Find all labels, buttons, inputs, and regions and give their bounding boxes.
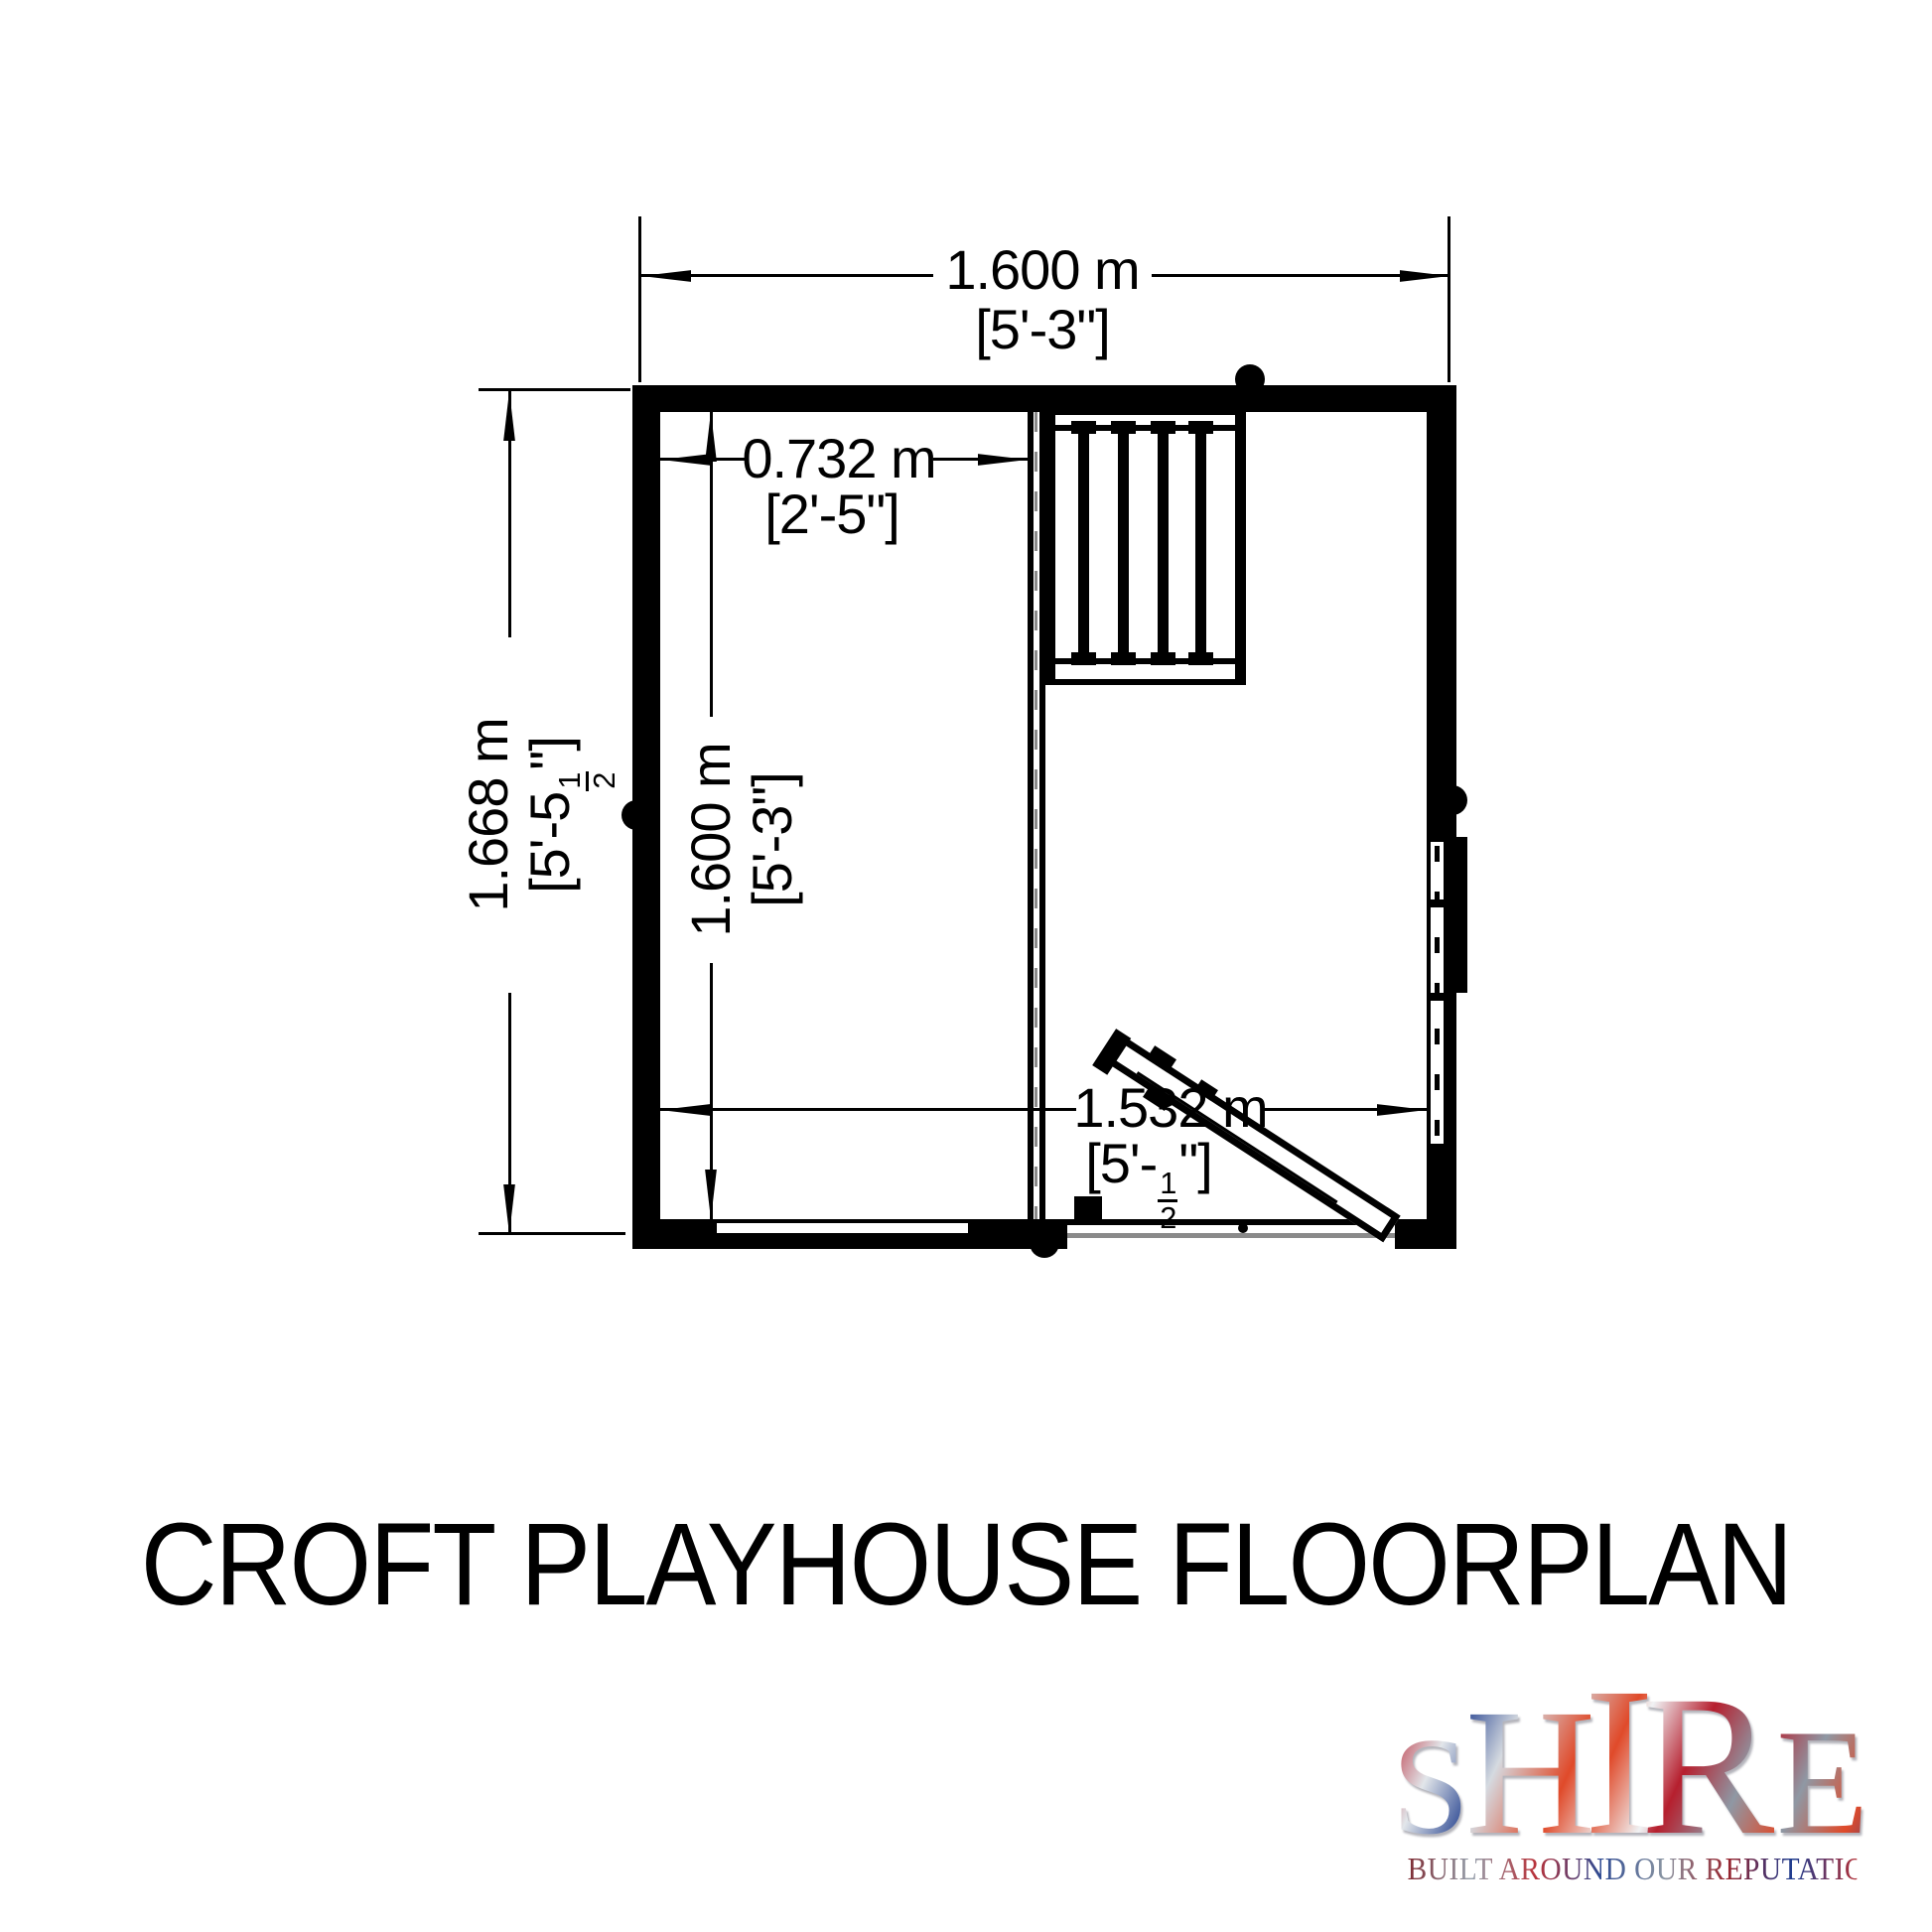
joint-bump-left xyxy=(621,800,651,830)
wall-top xyxy=(632,385,1456,412)
dim-interior-depth-imperial: [5'-3"] xyxy=(742,626,803,1053)
dim-overall-depth-imperial: [5'-512"] xyxy=(519,602,621,1029)
ext-line xyxy=(638,216,641,382)
dim-arrow-up xyxy=(502,391,516,441)
ladder-rung-tab xyxy=(1151,421,1175,434)
dim-arrow-left xyxy=(641,269,691,283)
dim-interior-depth-label: 1.600 m [5'-3"] xyxy=(679,626,804,1053)
shire-logo-letter: R xyxy=(1641,1665,1775,1865)
ladder-rung-tab xyxy=(1111,652,1136,665)
joint-bump-right xyxy=(1438,785,1467,815)
floorplan-page: 1.600 m [5'-3"] 1.668 m [5'-512"] 1.600 … xyxy=(0,0,1932,1932)
dim-arrow-right xyxy=(1377,1103,1427,1117)
ladder-right-stile xyxy=(1235,409,1246,685)
shire-logo-tagline: BUILT AROUND OUR REPUTATION xyxy=(1408,1851,1858,1887)
dim-interior-width-metric: 1.532 m xyxy=(972,1080,1369,1136)
ladder-rung xyxy=(1078,429,1089,659)
dim-veranda-width-metric: 0.732 m xyxy=(640,431,1037,486)
dim-arrow-left xyxy=(660,1103,710,1117)
page-title: CROFT PLAYHOUSE FLOORPLAN xyxy=(96,1497,1835,1632)
ext-line xyxy=(479,1232,625,1235)
ladder-rung-tab xyxy=(1151,652,1175,665)
side-window-outer-frame xyxy=(1456,837,1467,993)
dim-interior-depth-metric: 1.600 m xyxy=(680,626,742,1053)
ext-line xyxy=(1448,216,1450,382)
shire-logo-letter: E xyxy=(1776,1707,1868,1858)
ladder-rung xyxy=(1158,429,1169,659)
dim-overall-width-imperial: [5'-3"] xyxy=(844,302,1241,357)
dim-overall-depth-label: 1.668 m [5'-512"] xyxy=(477,602,602,1029)
ladder-rung-tab xyxy=(1188,421,1213,434)
ladder-rung-tab xyxy=(1111,421,1136,434)
shire-logo-letter: H xyxy=(1465,1683,1595,1863)
ladder-rung-tab xyxy=(1071,421,1096,434)
wall-bottom-right xyxy=(1395,1219,1456,1249)
dim-overall-depth-metric: 1.668 m xyxy=(458,602,519,1029)
front-window xyxy=(717,1223,968,1233)
door-hardware-tab xyxy=(1146,1045,1176,1073)
dim-arrow-down xyxy=(502,1184,516,1234)
joint-bump-top xyxy=(1235,364,1265,394)
dim-interior-width-imperial: [5'-12"] xyxy=(950,1136,1347,1234)
ladder-rung xyxy=(1118,429,1129,659)
side-window-divider xyxy=(1431,993,1444,1001)
door-end-cap xyxy=(1092,1029,1131,1075)
side-window-divider xyxy=(1431,899,1444,907)
ladder-left-stile xyxy=(1044,409,1055,685)
dim-arrow-down xyxy=(704,1170,718,1219)
shire-logo: S H I R E xyxy=(1392,1656,1878,1855)
ladder-rung-tab xyxy=(1071,652,1096,665)
dim-veranda-width-imperial: [2'-5"] xyxy=(633,486,1031,542)
dim-arrow-right xyxy=(1400,269,1449,283)
ladder-rung-tab xyxy=(1188,652,1213,665)
dim-overall-width-metric: 1.600 m xyxy=(844,242,1241,298)
ladder-rung xyxy=(1195,429,1206,659)
ext-line xyxy=(479,388,630,391)
shire-logo-letter: S xyxy=(1392,1718,1469,1857)
